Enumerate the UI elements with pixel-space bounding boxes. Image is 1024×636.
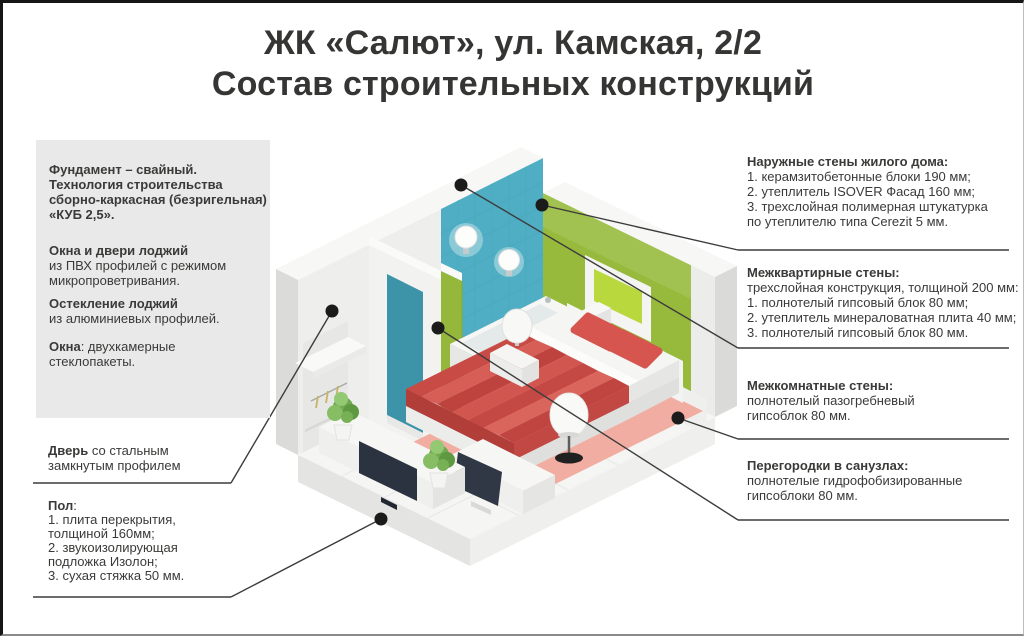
foundation-line: сборно-каркасная (безригельная) — [49, 192, 267, 207]
outer-walls-line: 1. керамзитобетонные блоки 190 мм; — [747, 169, 988, 184]
door-note: Дверь со стальным замкнутым профилем — [48, 443, 181, 473]
page-title: ЖК «Салют», ул. Камская, 2/2 Состав стро… — [3, 23, 1023, 105]
floor-line: 2. звукоизолирующая — [48, 541, 184, 555]
inter-room-walls-line: полнотелый пазогребневый — [747, 393, 915, 408]
windows-rest: : двухкамерные — [81, 339, 176, 354]
outer-walls-note: Наружные стены жилого дома: 1. керамзито… — [747, 154, 988, 229]
callout-dot-floor — [375, 513, 388, 526]
floor-line: 1. плита перекрытия, — [48, 513, 184, 527]
inter-room-walls-title: Межкомнатные стены: — [747, 378, 893, 393]
callout-dot-inter-room-walls — [672, 412, 685, 425]
floor-line: толщиной 160мм; — [48, 527, 184, 541]
callout-dot-outer-walls — [536, 199, 549, 212]
foundation-line: Технология строительства — [49, 177, 267, 192]
foundation-note: Фундамент – свайный. Технология строител… — [49, 162, 267, 222]
floor-title: Пол — [48, 498, 73, 513]
floor-line: подложка Изолон; — [48, 555, 184, 569]
door-line: замкнутым профилем — [48, 458, 181, 473]
sanuzel-partitions-note: Перегородки в санузлах: полнотелые гидро… — [747, 458, 962, 503]
windows-title: Окна — [49, 339, 81, 354]
construction-info-box: Фундамент – свайный. Технология строител… — [36, 140, 270, 418]
faucet-icon — [545, 297, 551, 303]
loggia-glazing-note: Остекление лоджий из алюминиевых профиле… — [49, 296, 220, 326]
windows-note: Окна: двухкамерные стеклопакеты. — [49, 339, 176, 369]
outer-walls-line: 2. утеплитель ISOVER Фасад 160 мм; — [747, 184, 988, 199]
sanuzel-partitions-line: полнотелые гидрофобизированные — [747, 473, 962, 488]
loggia-windows-note: Окна и двери лоджий из ПВХ профилей с ре… — [49, 243, 226, 288]
inter-room-walls-line: гипсоблок 80 мм. — [747, 408, 915, 423]
inter-apartment-walls-line: трехслойная конструкция, толщиной 200 мм… — [747, 280, 1019, 295]
foundation-line: «КУБ 2,5». — [49, 207, 267, 222]
infographic-page: ЖК «Салют», ул. Камская, 2/2 Состав стро… — [0, 0, 1024, 636]
callout-dot-door — [326, 305, 339, 318]
page-title-line1: ЖК «Салют», ул. Камская, 2/2 — [3, 23, 1023, 64]
outer-walls-title: Наружные стены жилого дома: — [747, 154, 948, 169]
floor-rest: : — [73, 498, 77, 513]
floor-line: 3. сухая стяжка 50 мм. — [48, 569, 184, 583]
inter-room-walls-note: Межкомнатные стены: полнотелый пазогребн… — [747, 378, 915, 423]
loggia-windows-title: Окна и двери лоджий — [49, 243, 188, 258]
callout-dot-inter-apartment-walls — [455, 179, 468, 192]
outer-walls-line: по утеплителю типа Cerezit 5 мм. — [747, 214, 988, 229]
page-title-line2: Состав строительных конструкций — [3, 64, 1023, 105]
sanuzel-partitions-line: гипсоблоки 80 мм. — [747, 488, 962, 503]
foundation-line: Фундамент – свайный. — [49, 162, 267, 177]
loggia-glazing-title: Остекление лоджий — [49, 296, 178, 311]
door-rest: со стальным — [88, 443, 168, 458]
windows-line: стеклопакеты. — [49, 354, 176, 369]
outer-walls-line: 3. трехслойная полимерная штукатурка — [747, 199, 988, 214]
inter-apartment-walls-note: Межквартирные стены: трехслойная констру… — [747, 265, 1019, 340]
inter-apartment-walls-line: 1. полнотелый гипсовый блок 80 мм; — [747, 295, 1019, 310]
inter-apartment-walls-line: 2. утеплитель минераловатная плита 40 мм… — [747, 310, 1019, 325]
inter-apartment-walls-title: Межквартирные стены: — [747, 265, 900, 280]
loggia-windows-line: микропроветривания. — [49, 273, 226, 288]
inter-apartment-walls-line: 3. полнотелый гипсовый блок 80 мм. — [747, 325, 1019, 340]
callout-dot-sanuzel-partitions — [432, 322, 445, 335]
sanuzel-partitions-title: Перегородки в санузлах: — [747, 458, 908, 473]
loggia-glazing-line: из алюминиевых профилей. — [49, 311, 220, 326]
loggia-windows-line: из ПВХ профилей с режимом — [49, 258, 226, 273]
door-title: Дверь — [48, 443, 88, 458]
floor-note: Пол: 1. плита перекрытия, толщиной 160мм… — [48, 499, 184, 583]
